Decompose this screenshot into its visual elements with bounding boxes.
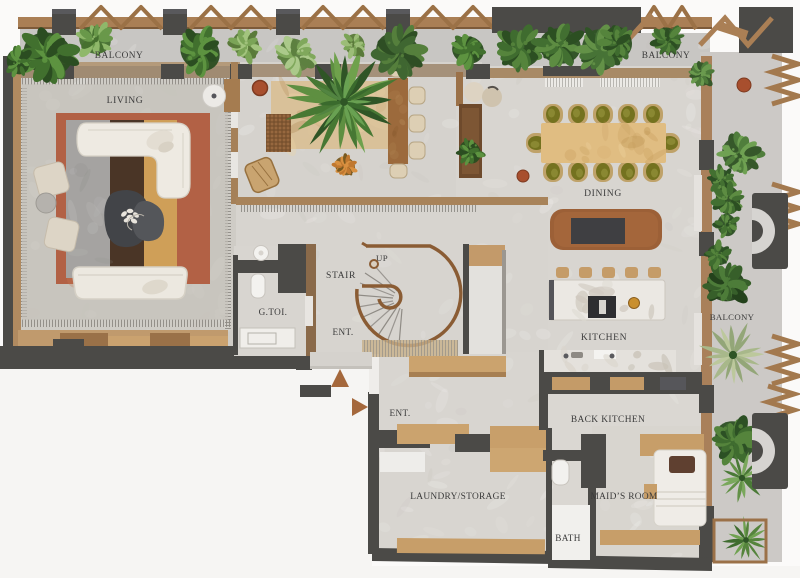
svg-text:KITCHEN: KITCHEN [581, 332, 627, 343]
svg-text:STAIR: STAIR [326, 270, 356, 281]
svg-text:BACK KITCHEN: BACK KITCHEN [571, 415, 645, 425]
svg-text:LIVING: LIVING [107, 95, 144, 106]
svg-text:BALCONY: BALCONY [710, 312, 755, 322]
svg-text:BALCONY: BALCONY [642, 51, 690, 61]
svg-text:UP: UP [376, 253, 388, 263]
svg-text:G.TOI.: G.TOI. [259, 307, 288, 317]
svg-text:BATH: BATH [555, 533, 581, 543]
svg-text:ENT.: ENT. [332, 327, 353, 337]
svg-text:MAID’S ROOM: MAID’S ROOM [590, 492, 657, 502]
svg-text:LAUNDRY/STORAGE: LAUNDRY/STORAGE [410, 492, 505, 502]
svg-text:ENT.: ENT. [389, 408, 410, 418]
svg-text:DINING: DINING [584, 188, 622, 199]
svg-text:BALCONY: BALCONY [95, 51, 143, 61]
